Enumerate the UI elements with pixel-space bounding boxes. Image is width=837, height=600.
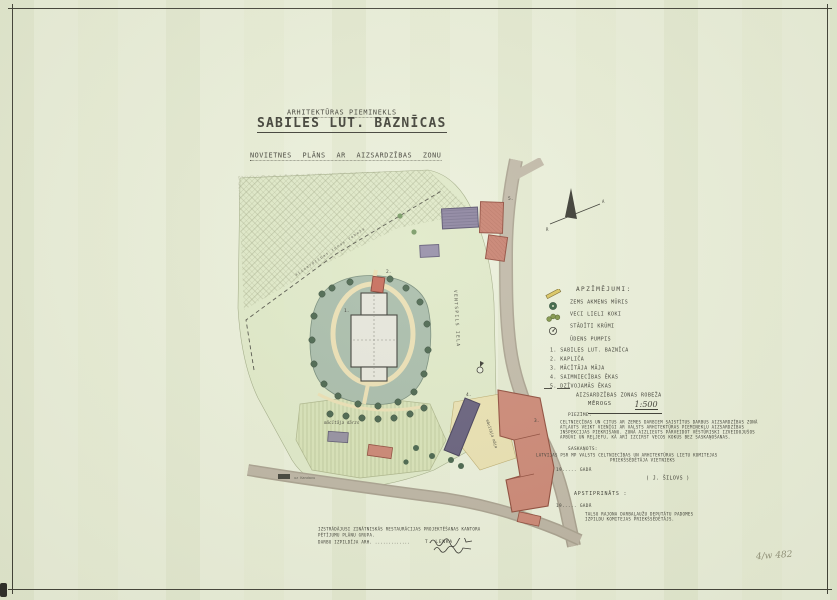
frame-left-line — [12, 4, 13, 594]
road-stub-label: uz Kandavu — [294, 476, 315, 480]
agreed-signature-text: ( J. ŠILOVS ) — [646, 475, 690, 481]
stone-wall-icon — [546, 289, 561, 299]
number-dwelling: 5. — [508, 196, 513, 202]
frame-top-line — [8, 8, 832, 9]
number-church: 1. — [344, 308, 349, 314]
north-left-letter: R — [546, 227, 549, 232]
number-farm: 4. — [466, 392, 471, 398]
water-pump-icon — [549, 327, 556, 334]
agreed-date-text: 19..... GADĀ — [556, 467, 592, 472]
road-marker — [278, 474, 290, 479]
tree — [429, 453, 435, 459]
scale-value: 1:500 — [635, 400, 658, 410]
frame-bottom-line — [8, 589, 832, 590]
agreed-date: 19..... GADĀ — [556, 459, 621, 478]
drawing-sheet: ARHITEKTŪRAS PIEMINEKLS SABILES LUT. BAZ… — [0, 0, 837, 600]
page-title: SABILES LUT. BAZNĪCAS — [257, 116, 447, 133]
frame-right-line — [827, 4, 828, 594]
scan-edge-mark — [0, 583, 7, 597]
legend-icons — [544, 289, 564, 339]
north-arrow: R A — [546, 188, 605, 232]
boundary-line-gap — [552, 388, 557, 389]
garden-building-gray — [328, 431, 349, 442]
credits-text: DARBU IZPILDĪJA ARH. ............. — [318, 540, 410, 545]
bushes-icon — [546, 312, 561, 322]
tree — [413, 445, 419, 451]
dwelling-purple-small — [420, 244, 440, 257]
big-tree-icon — [549, 302, 556, 309]
tree — [403, 459, 408, 464]
north-right-letter: A — [602, 199, 605, 204]
number-parsonage: 3. — [534, 418, 539, 424]
signature-scribble — [434, 546, 471, 553]
boundary-line-sample — [544, 388, 570, 389]
tree — [458, 463, 464, 469]
signature-scribble — [430, 538, 472, 547]
garden-label: mācītāja dārzs — [323, 420, 360, 425]
chapel-building — [371, 276, 385, 293]
signature-scribbles — [428, 538, 488, 554]
number-chapel: 2. — [386, 269, 391, 275]
corner-inventory-note: 4/w 482 — [756, 550, 793, 563]
tree — [448, 457, 454, 463]
